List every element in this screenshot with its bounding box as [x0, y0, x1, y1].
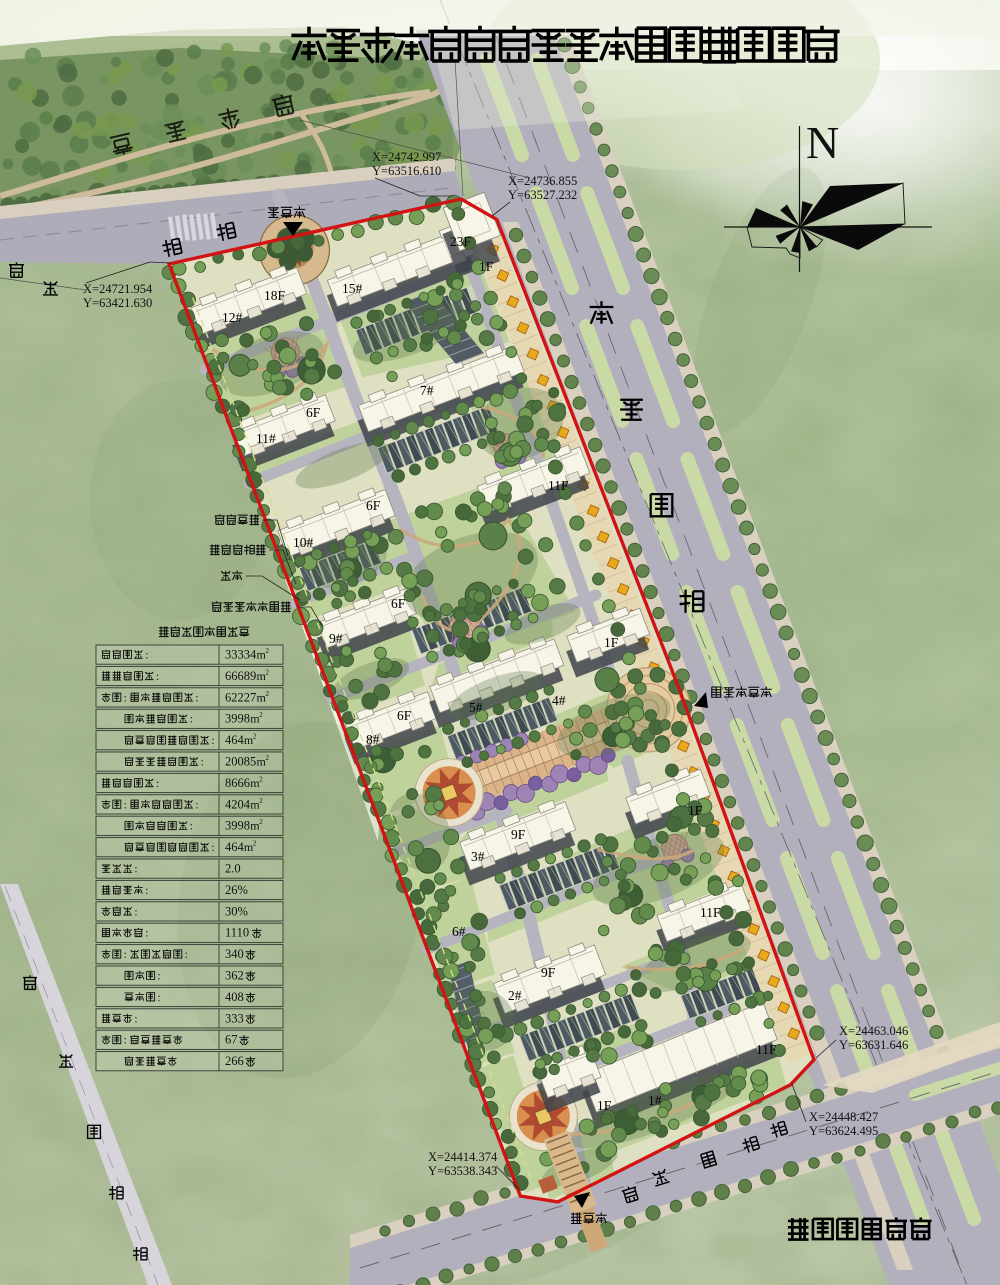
svg-text::: : — [134, 1013, 137, 1025]
svg-text:6F: 6F — [306, 405, 321, 420]
svg-text:1F: 1F — [597, 1098, 612, 1113]
svg-text:333: 333 — [225, 1011, 244, 1025]
svg-text::: : — [211, 842, 214, 854]
svg-text:Y=63624.495: Y=63624.495 — [809, 1124, 878, 1138]
svg-text:26%: 26% — [225, 883, 248, 897]
svg-text:11#: 11# — [256, 431, 276, 446]
svg-text::: : — [190, 821, 193, 833]
svg-text:20085: 20085 — [225, 755, 256, 769]
svg-text::: : — [201, 757, 204, 769]
svg-text:2: 2 — [266, 754, 270, 762]
svg-text::: : — [157, 992, 160, 1004]
svg-text:66689: 66689 — [225, 669, 256, 683]
svg-text:2: 2 — [259, 775, 263, 783]
svg-text:6F: 6F — [391, 596, 406, 611]
svg-text:2#: 2# — [508, 988, 522, 1003]
svg-text:464: 464 — [225, 840, 245, 854]
svg-text:X=24736.855: X=24736.855 — [508, 174, 577, 188]
svg-text::: : — [145, 650, 148, 662]
svg-text:30%: 30% — [225, 904, 248, 918]
svg-text:2: 2 — [259, 797, 263, 805]
svg-text:11F: 11F — [548, 478, 569, 493]
svg-text:1F: 1F — [479, 259, 494, 274]
svg-text::: : — [134, 864, 137, 876]
svg-text:11F: 11F — [700, 905, 721, 920]
svg-text:11F: 11F — [756, 1042, 777, 1057]
svg-text::: : — [145, 928, 148, 940]
svg-text:2: 2 — [266, 668, 270, 676]
svg-text::: : — [157, 971, 160, 983]
svg-text:3998: 3998 — [225, 712, 250, 726]
svg-text:2: 2 — [253, 733, 257, 741]
svg-text:X=24721.954: X=24721.954 — [83, 282, 153, 296]
svg-text:N: N — [806, 117, 839, 168]
svg-text:18F: 18F — [264, 288, 286, 303]
svg-text:2.0: 2.0 — [225, 862, 241, 876]
svg-text:2: 2 — [266, 647, 270, 655]
svg-text:1110: 1110 — [225, 926, 249, 940]
svg-text:9#: 9# — [329, 631, 343, 646]
svg-text:X=24742.997: X=24742.997 — [372, 150, 441, 164]
svg-text:2: 2 — [259, 818, 263, 826]
svg-text:2: 2 — [253, 840, 257, 848]
svg-text:1F: 1F — [688, 803, 703, 818]
svg-text:4#: 4# — [552, 693, 566, 708]
svg-text:6#: 6# — [452, 924, 466, 939]
svg-text:67: 67 — [225, 1033, 238, 1047]
svg-text::: : — [156, 778, 159, 790]
svg-text:Y=63538.343: Y=63538.343 — [428, 1164, 497, 1178]
svg-text:464: 464 — [225, 733, 245, 747]
svg-text:6F: 6F — [366, 498, 381, 513]
svg-text::: : — [124, 949, 127, 961]
svg-text:340: 340 — [225, 947, 244, 961]
svg-text:266: 266 — [225, 1054, 244, 1068]
svg-text:9F: 9F — [511, 827, 526, 842]
svg-text:3998: 3998 — [225, 819, 250, 833]
svg-text::: : — [185, 949, 188, 961]
svg-text:8666: 8666 — [225, 776, 250, 790]
svg-text:4204: 4204 — [225, 797, 251, 811]
svg-text::: : — [145, 885, 148, 897]
svg-text:7#: 7# — [420, 383, 434, 398]
svg-text:408: 408 — [225, 990, 244, 1004]
svg-text:362: 362 — [225, 969, 244, 983]
svg-text:5#: 5# — [469, 700, 483, 715]
svg-text::: : — [124, 692, 127, 704]
svg-text::: : — [156, 671, 159, 683]
svg-text:Y=63516.610: Y=63516.610 — [372, 164, 441, 178]
svg-text:15#: 15# — [342, 281, 363, 296]
svg-text:2: 2 — [266, 690, 270, 698]
svg-text:6F: 6F — [397, 708, 412, 723]
svg-text:Y=63527.232: Y=63527.232 — [508, 188, 577, 202]
svg-text:33334: 33334 — [225, 648, 257, 662]
svg-text:10#: 10# — [293, 535, 314, 550]
svg-text::: : — [211, 735, 214, 747]
svg-text:9F: 9F — [541, 965, 556, 980]
svg-text:X=24448.427: X=24448.427 — [809, 1110, 878, 1124]
svg-text:Y=63421.630: Y=63421.630 — [83, 296, 152, 310]
svg-text:23F: 23F — [450, 234, 472, 249]
svg-text:1F: 1F — [604, 635, 619, 650]
svg-text::: : — [124, 1035, 127, 1047]
svg-text::: : — [190, 714, 193, 726]
svg-text::: : — [124, 799, 127, 811]
svg-text:X=24414.374: X=24414.374 — [428, 1150, 498, 1164]
svg-text:3#: 3# — [471, 849, 485, 864]
svg-text:Y=63631.646: Y=63631.646 — [839, 1038, 908, 1052]
svg-text:12#: 12# — [222, 310, 243, 325]
svg-text:2: 2 — [259, 711, 263, 719]
svg-text:8#: 8# — [366, 732, 380, 747]
svg-text::: : — [195, 692, 198, 704]
svg-text:X=24463.046: X=24463.046 — [839, 1024, 908, 1038]
svg-text::: : — [134, 906, 137, 918]
svg-text:62227: 62227 — [225, 690, 256, 704]
svg-text:1#: 1# — [648, 1093, 662, 1108]
svg-text::: : — [195, 799, 198, 811]
